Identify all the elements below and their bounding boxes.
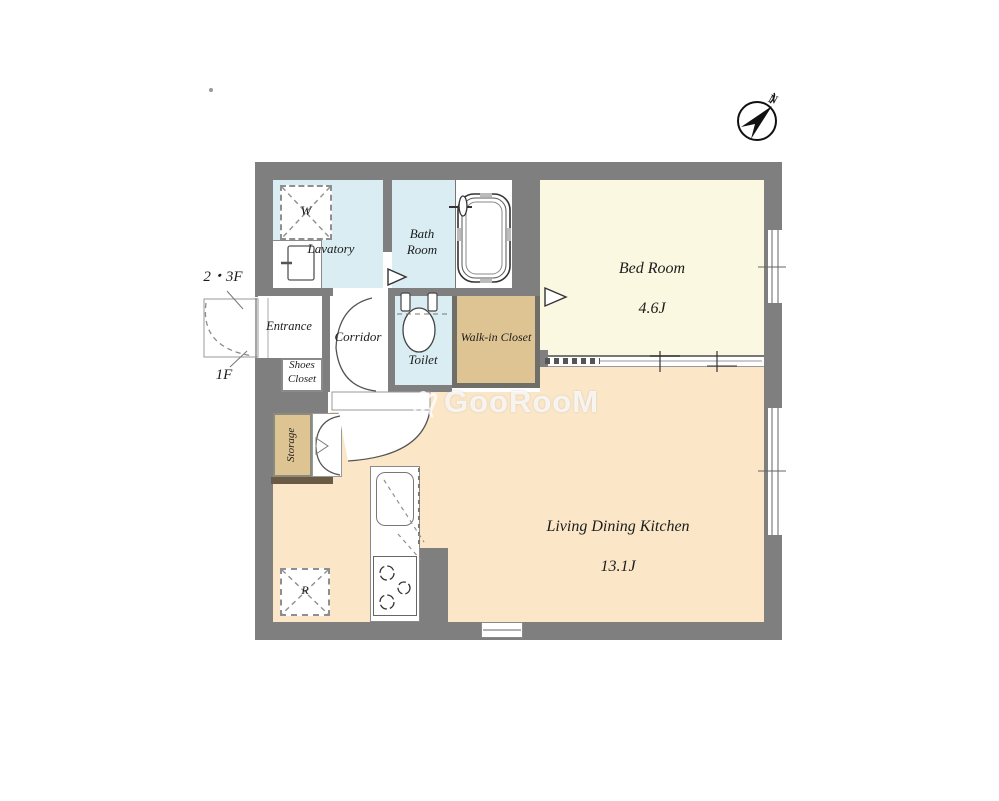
bathroom-label: Bath Room — [396, 226, 448, 259]
bedroom-size: 4.6J — [552, 299, 752, 319]
bedroom-window — [768, 230, 786, 303]
wall-under-shoes — [273, 392, 328, 413]
wall-bath-bedroom — [512, 180, 540, 288]
shoes-closet-label: Shoes Closet — [279, 359, 325, 387]
floor-plan: Bed Room 4.6J Living Dining Kitchen 13.1… — [0, 0, 999, 801]
corridor-label: Corridor — [325, 329, 391, 345]
wic-label: Walk-in Closet — [453, 330, 539, 345]
leader-upper-floors — [227, 291, 243, 309]
wall-top — [255, 162, 782, 180]
compass-north-label: N — [761, 89, 785, 109]
first-floor-label: 1F — [206, 366, 242, 385]
upper-floors-label: 2・3F — [197, 268, 249, 287]
corridor-top-opening — [333, 288, 388, 296]
stray-dot — [209, 88, 213, 92]
storage-shelf — [271, 477, 333, 484]
bottom-window — [481, 622, 523, 638]
wall-partition-end — [540, 350, 548, 367]
toilet-floor — [395, 290, 452, 386]
watermark-text: GooRooM — [444, 384, 599, 420]
wall-lavatory-bath — [383, 180, 392, 252]
watermark: GooRooM — [410, 384, 599, 420]
toilet-label: Toilet — [397, 352, 449, 368]
storage-doors — [312, 413, 342, 477]
bedroom-label: Bed Room 4.6J — [552, 239, 752, 339]
entrance-label: Entrance — [256, 319, 322, 335]
wall-kitchen-stub — [418, 548, 448, 640]
bathtub-area — [455, 180, 512, 288]
washing-machine-label: W — [280, 203, 332, 219]
stove — [373, 556, 417, 616]
leader-first-floor — [230, 351, 247, 367]
wall-left-lower — [255, 357, 273, 622]
ldk-window — [768, 408, 786, 535]
wall-mid-horizontal — [273, 288, 540, 296]
storage-name: Storage — [286, 428, 300, 462]
lavatory-label: Lavatory — [295, 241, 367, 257]
wall-left — [255, 180, 273, 297]
ldk-label: Living Dining Kitchen 13.1J — [518, 497, 718, 597]
bedroom-name: Bed Room — [552, 259, 752, 279]
ldk-name: Living Dining Kitchen — [518, 517, 718, 537]
ldk-size: 13.1J — [518, 557, 718, 577]
kitchen-sink — [376, 472, 414, 526]
bedroom-partition — [540, 355, 764, 367]
storage-label: Storage — [273, 413, 312, 477]
watermark-logo-icon — [410, 385, 440, 419]
refrigerator-label: R — [280, 583, 330, 598]
